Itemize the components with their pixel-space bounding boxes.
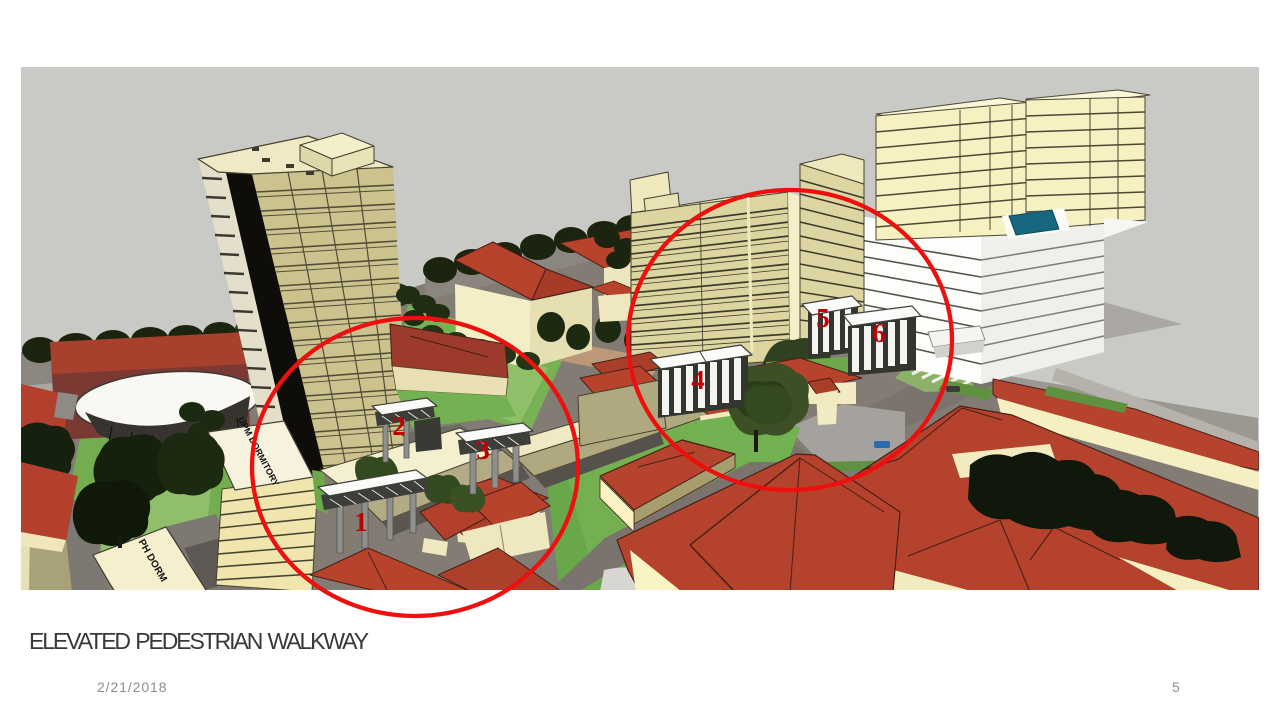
svg-text:4: 4 — [691, 365, 705, 395]
svg-text:6: 6 — [872, 318, 886, 348]
svg-text:5: 5 — [816, 303, 830, 333]
svg-text:3: 3 — [476, 435, 490, 465]
svg-text:1: 1 — [354, 507, 368, 537]
svg-text:2: 2 — [392, 411, 406, 441]
